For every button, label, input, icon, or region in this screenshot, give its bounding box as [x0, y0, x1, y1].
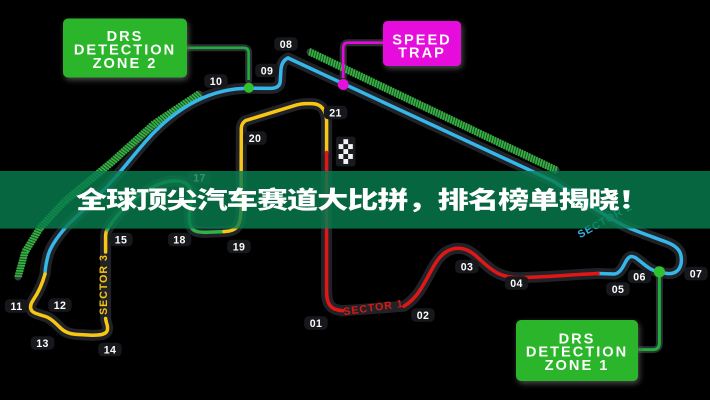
svg-text:12: 12 — [54, 300, 67, 312]
svg-text:TRAP: TRAP — [398, 46, 446, 62]
svg-text:18: 18 — [173, 234, 186, 246]
svg-text:ZONE 1: ZONE 1 — [545, 358, 610, 374]
svg-text:05: 05 — [612, 284, 625, 296]
svg-text:20: 20 — [249, 133, 262, 145]
svg-text:06: 06 — [633, 271, 646, 283]
svg-text:21: 21 — [329, 107, 342, 119]
svg-text:15: 15 — [115, 234, 128, 246]
svg-text:02: 02 — [417, 310, 430, 322]
svg-text:10: 10 — [210, 76, 223, 88]
svg-text:14: 14 — [104, 344, 117, 356]
svg-text:04: 04 — [510, 278, 523, 290]
svg-text:19: 19 — [233, 241, 246, 253]
svg-text:13: 13 — [36, 338, 49, 350]
svg-text:03: 03 — [461, 261, 474, 273]
svg-text:08: 08 — [280, 39, 293, 51]
svg-text:11: 11 — [11, 301, 23, 313]
svg-text:SECTOR 3: SECTOR 3 — [98, 254, 110, 315]
svg-text:07: 07 — [690, 268, 703, 280]
svg-text:09: 09 — [261, 65, 274, 77]
svg-text:ZONE 2: ZONE 2 — [93, 56, 158, 72]
svg-text:01: 01 — [310, 318, 323, 330]
